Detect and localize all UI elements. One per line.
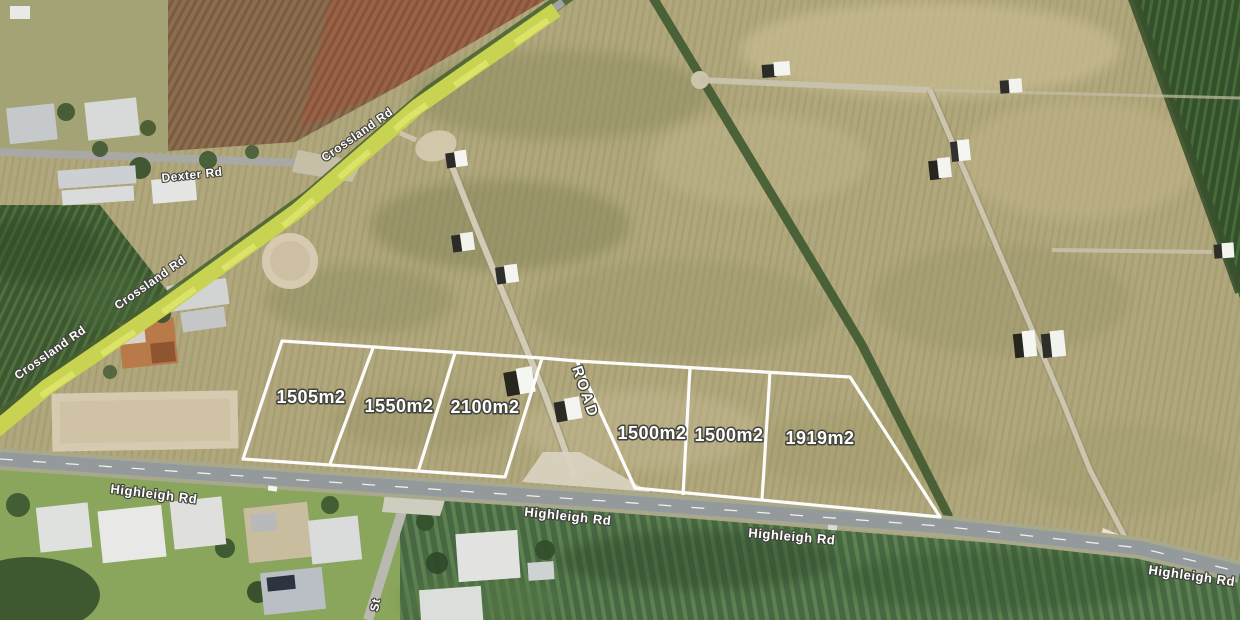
lot-label-1550: 1550m2 <box>364 396 433 416</box>
lot-label-2100: 2100m2 <box>450 397 519 417</box>
car <box>828 525 837 531</box>
sand-arena <box>51 390 238 451</box>
road-label-side-street: St <box>367 597 383 612</box>
lot-label-1505: 1505m2 <box>276 387 345 407</box>
solar-roof-house <box>260 567 326 615</box>
aerial-subdivision-map: 1505m2 1550m2 2100m2 1500m2 1500m2 1919m… <box>0 0 1240 620</box>
lot-label-1500b: 1500m2 <box>694 425 763 445</box>
circular-pad <box>262 233 318 289</box>
lot-label-1919: 1919m2 <box>785 428 854 448</box>
lot-label-1500a: 1500m2 <box>617 423 686 443</box>
satellite-canvas: 1505m2 1550m2 2100m2 1500m2 1500m2 1919m… <box>0 0 1240 620</box>
